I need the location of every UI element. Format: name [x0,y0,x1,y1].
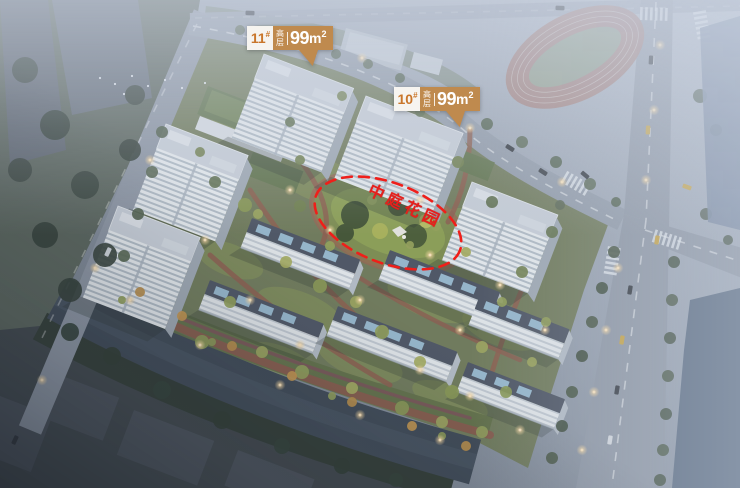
floor-type-label: 高层 [276,29,285,47]
area-unit: m [309,31,321,45]
area-value: 99 [290,29,309,47]
building-number-badge: 10# [394,87,420,111]
callout-building-10: 10# 高层 99m2 [394,87,480,111]
haze-overlay [0,0,740,488]
number-hash: # [266,31,270,39]
area-value: 99 [437,90,456,108]
floor-type-label: 高层 [423,90,432,108]
area-badge: 高层 99m2 [273,26,333,50]
number-hash: # [413,92,417,100]
building-number: 10 [397,92,413,106]
callout-building-11: 11# 高层 99m2 [247,26,333,50]
building-number-badge: 11# [247,26,273,50]
area-badge: 高层 99m2 [420,87,480,111]
aerial-render: 11# 高层 99m2 10# 高层 99m2 中庭花园 [0,0,740,488]
area-unit: m [456,92,468,106]
divider [434,93,435,106]
building-number: 11 [251,31,266,45]
scene-illustration [0,0,740,488]
area-exponent: 2 [468,90,473,100]
divider [287,32,288,45]
area-exponent: 2 [321,29,326,39]
